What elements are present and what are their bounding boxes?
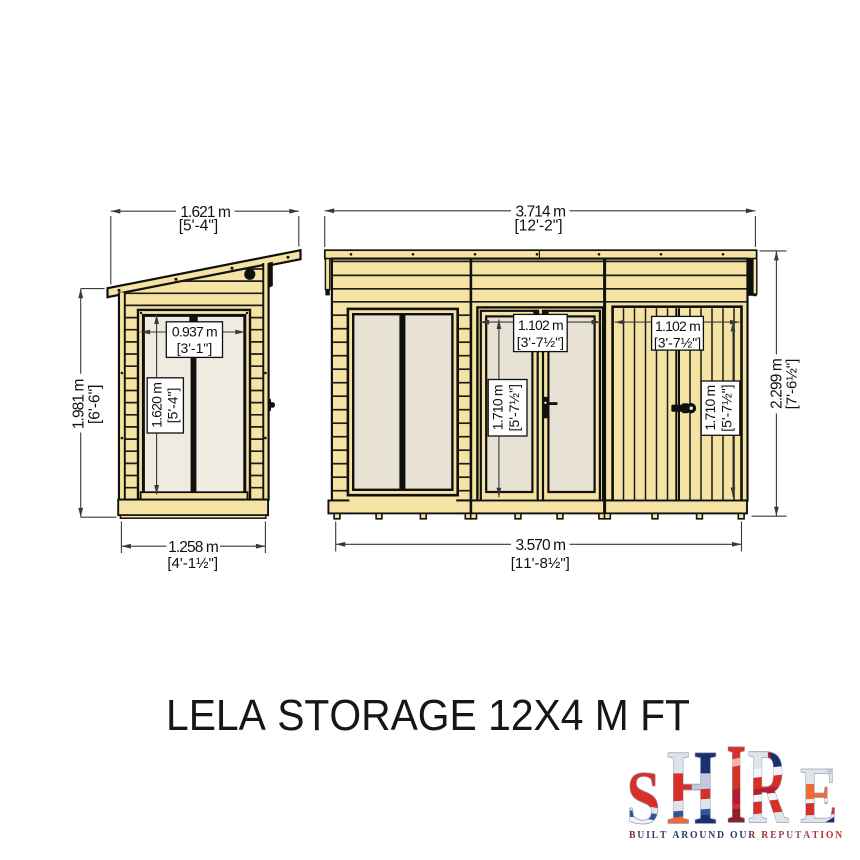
svg-text:1.102 m: 1.102 m xyxy=(518,317,563,333)
svg-text:[12'-2"]: [12'-2"] xyxy=(514,217,562,234)
svg-text:[5'-4"]: [5'-4"] xyxy=(165,388,181,424)
svg-text:[11'-8½"]: [11'-8½"] xyxy=(511,555,570,572)
svg-text:[7'-6½"]: [7'-6½"] xyxy=(784,359,801,410)
svg-text:[5'-7½"]: [5'-7½"] xyxy=(506,384,522,431)
svg-text:[4'-1½"]: [4'-1½"] xyxy=(167,555,218,572)
svg-text:[3'-7½"]: [3'-7½"] xyxy=(654,334,701,350)
svg-text:[6'-6"]: [6'-6"] xyxy=(87,385,104,424)
svg-text:LELA STORAGE 12X4 M FT: LELA STORAGE 12X4 M FT xyxy=(166,692,690,740)
svg-text:1.258 m: 1.258 m xyxy=(168,539,218,556)
svg-text:3.570 m: 3.570 m xyxy=(515,537,565,554)
svg-text:1.981 m: 1.981 m xyxy=(71,379,88,429)
svg-text:[3'-7½"]: [3'-7½"] xyxy=(517,334,564,350)
svg-text:1.710 m: 1.710 m xyxy=(490,385,506,430)
svg-text:1.710 m: 1.710 m xyxy=(702,385,718,430)
svg-text:0.937 m: 0.937 m xyxy=(172,324,217,340)
svg-text:[3'-1"]: [3'-1"] xyxy=(177,340,213,356)
svg-text:BUILT AROUND OUR REPUTATION: BUILT AROUND OUR REPUTATION xyxy=(629,829,844,841)
svg-text:E: E xyxy=(800,751,838,840)
svg-text:1.620 m: 1.620 m xyxy=(148,383,164,428)
svg-text:1.102 m: 1.102 m xyxy=(655,318,700,334)
svg-text:S: S xyxy=(626,757,660,840)
svg-text:[5'-7½"]: [5'-7½"] xyxy=(719,384,735,431)
svg-text:[5'-4"]: [5'-4"] xyxy=(179,218,218,235)
